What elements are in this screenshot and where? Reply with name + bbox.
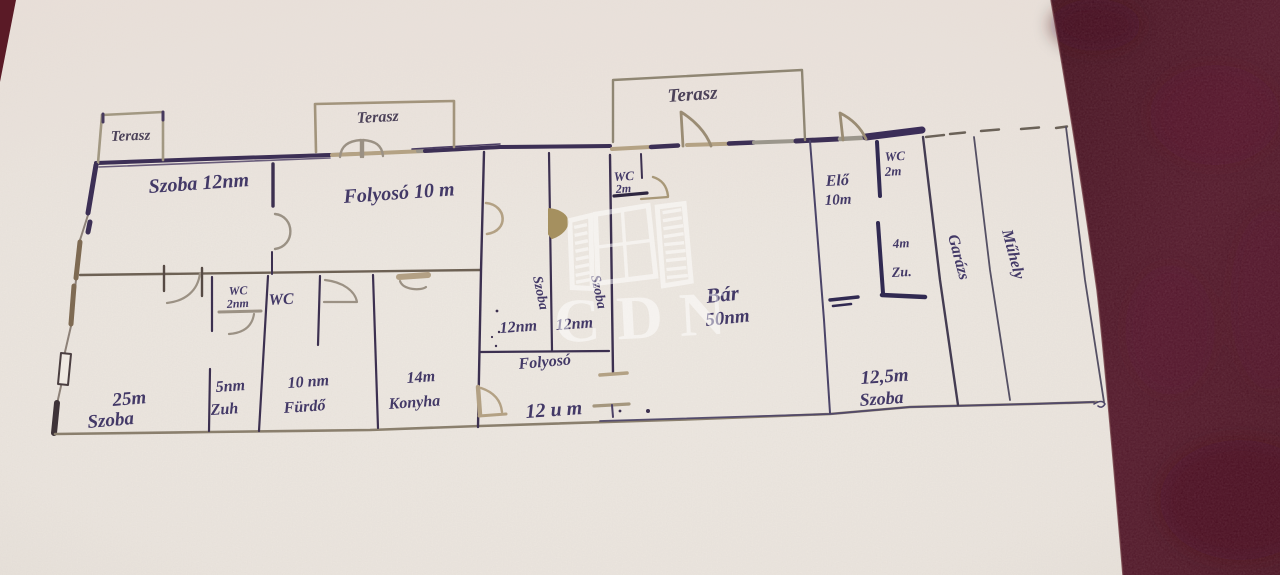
svg-text:Terasz: Terasz — [356, 108, 400, 127]
svg-text:4m: 4m — [891, 235, 909, 251]
svg-text:2m: 2m — [883, 163, 901, 179]
svg-text:14m: 14m — [406, 368, 436, 387]
svg-text:12,5m: 12,5m — [860, 365, 909, 389]
svg-text:12 u m: 12 u m — [525, 397, 583, 423]
svg-text:12nm: 12nm — [499, 317, 537, 337]
svg-text:2nm: 2nm — [225, 296, 249, 311]
svg-text:5nm: 5nm — [215, 377, 245, 396]
svg-text:Szoba: Szoba — [87, 408, 136, 433]
svg-text:10m: 10m — [824, 192, 851, 209]
svg-text:2m: 2m — [614, 181, 631, 196]
svg-text:WC: WC — [268, 291, 294, 309]
svg-text:Fürdő: Fürdő — [282, 397, 327, 417]
svg-text:Elő: Elő — [824, 172, 850, 190]
svg-text:Szoba: Szoba — [859, 387, 904, 410]
svg-text:CDN: CDN — [552, 279, 743, 357]
svg-text:Zu.: Zu. — [890, 265, 912, 281]
svg-text:Terasz: Terasz — [667, 83, 719, 107]
svg-text:10 nm: 10 nm — [287, 372, 329, 392]
svg-text:WC: WC — [884, 148, 905, 164]
svg-text:Zuh: Zuh — [209, 400, 239, 419]
svg-text:Terasz: Terasz — [111, 128, 151, 145]
